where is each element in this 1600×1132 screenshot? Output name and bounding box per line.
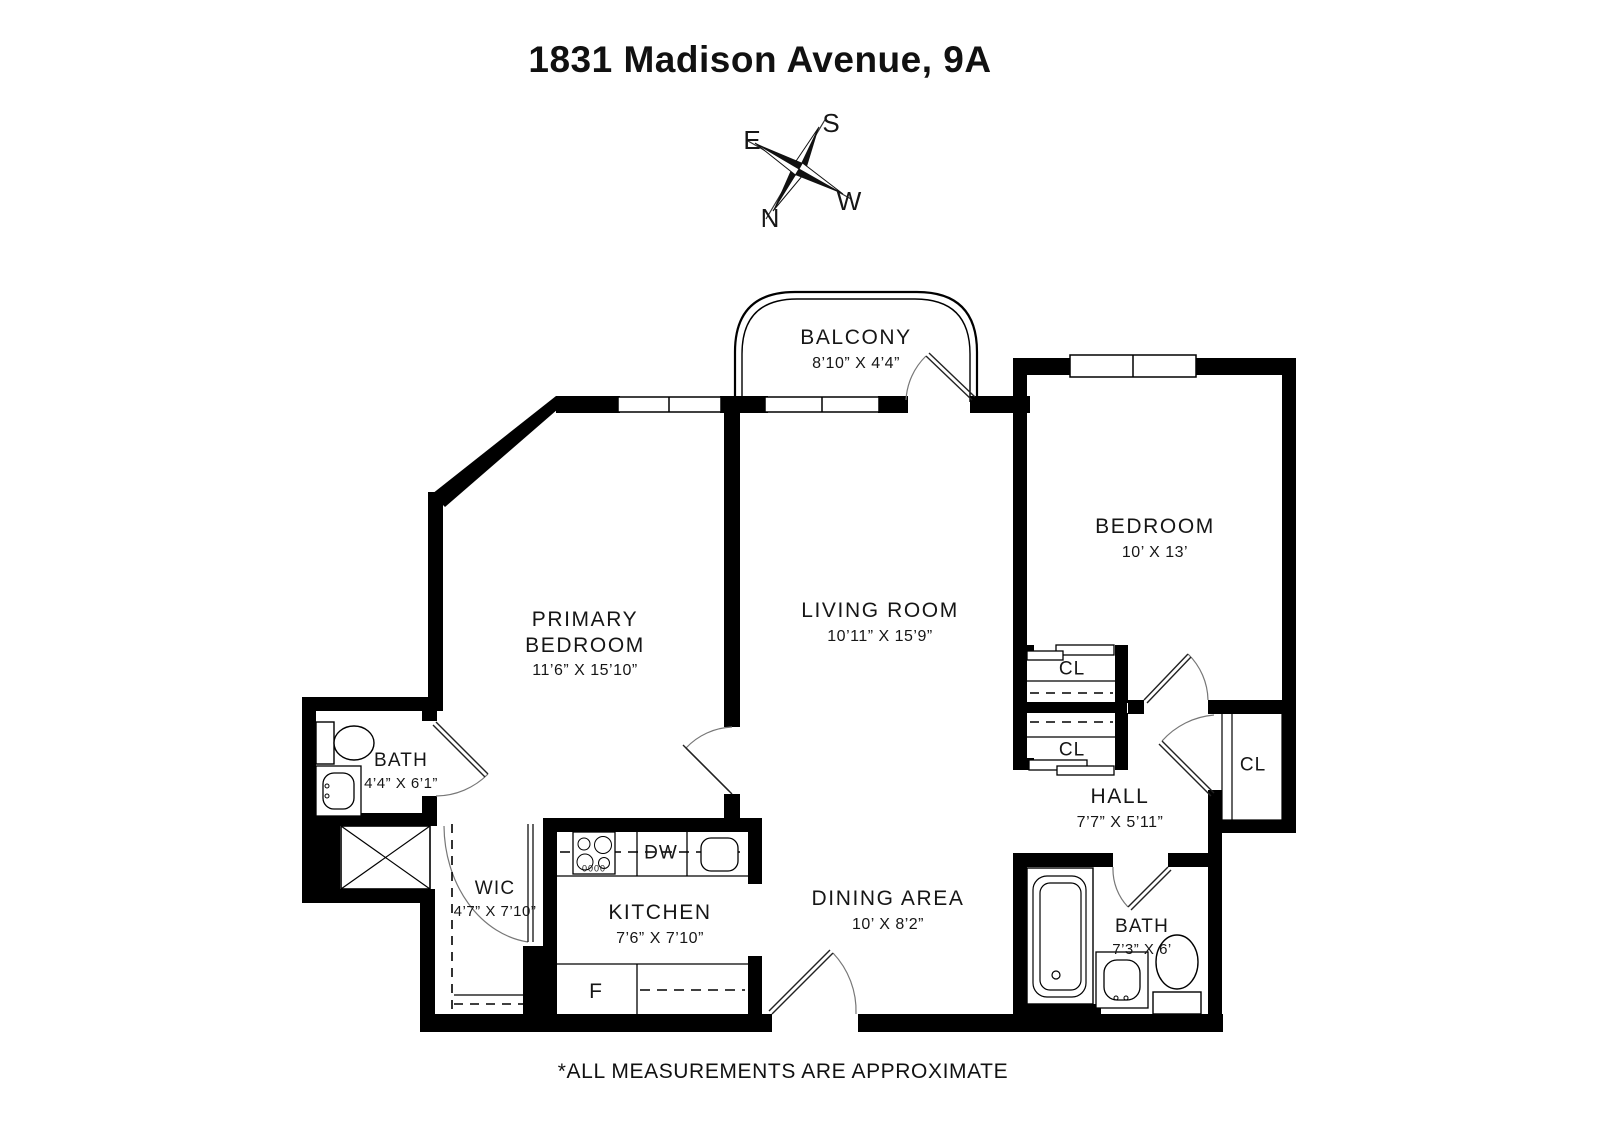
compass-rose-icon: S E W N xyxy=(743,108,861,233)
hall-name: HALL xyxy=(1077,784,1164,810)
compass-west-label: W xyxy=(837,186,862,216)
bedroom-dims: 10’ X 13’ xyxy=(1095,543,1215,563)
dining-area-dims: 10’ X 8’2” xyxy=(812,915,965,935)
footer-disclaimer: *ALL MEASUREMENTS ARE APPROXIMATE xyxy=(558,1060,1008,1084)
primary-bath-dims: 4’4” X 6’1” xyxy=(364,775,438,793)
wic-dims: 4’7” X 7’10” xyxy=(449,903,541,921)
room-label-kitchen: KITCHEN 7’6” X 7’10” xyxy=(608,900,711,948)
refrigerator-label: F xyxy=(589,979,603,1005)
compass-north-label: N xyxy=(761,203,780,233)
bath-sink-icon xyxy=(316,766,361,816)
closet-hall-label: CL xyxy=(1240,753,1266,776)
primary-bedroom-dims: 11’6” X 15’10” xyxy=(490,661,680,681)
floorplan-page: 1831 Madison Avenue, 9A S E W N xyxy=(0,0,1600,1132)
room-label-balcony: BALCONY 8’10” X 4’4” xyxy=(800,325,912,373)
balcony-door xyxy=(906,353,975,400)
closet-bottom-label: CL xyxy=(1059,738,1085,761)
hall-closet-door xyxy=(1159,715,1214,796)
hall-bath-door xyxy=(1113,867,1171,910)
room-label-hall-bath: BATH 7’3” X 6’ xyxy=(1112,915,1172,959)
dishwasher-label: DW xyxy=(644,841,678,864)
bathtub-icon xyxy=(1027,868,1093,1004)
balcony-dims: 8’10” X 4’4” xyxy=(800,354,912,374)
hall-bath-name: BATH xyxy=(1112,915,1172,938)
room-label-hall: HALL 7’7” X 5’11” xyxy=(1077,784,1164,832)
compass-south-label: S xyxy=(822,108,839,138)
entry-door xyxy=(769,950,856,1014)
room-label-wic: WIC 4’7” X 7’10” xyxy=(449,877,541,921)
bedroom-door xyxy=(1144,654,1208,703)
bedroom-name: BEDROOM xyxy=(1095,514,1215,540)
room-label-primary-bedroom: PRIMARY BEDROOM 11’6” X 15’10” xyxy=(490,607,680,681)
living-room-dims: 10’11” X 15’9” xyxy=(801,627,959,647)
hall-dims: 7’7” X 5’11” xyxy=(1077,813,1164,833)
window-primary-bedroom xyxy=(618,397,721,412)
primary-bath-door xyxy=(433,722,488,796)
kitchen-sink-icon xyxy=(701,838,738,871)
room-label-primary-bath: BATH 4’4” X 6’1” xyxy=(364,749,438,793)
room-label-living-room: LIVING ROOM 10’11” X 15’9” xyxy=(801,598,959,646)
room-label-bedroom: BEDROOM 10’ X 13’ xyxy=(1095,514,1215,562)
living-room-name: LIVING ROOM xyxy=(801,598,959,624)
closet-top-label: CL xyxy=(1059,657,1085,680)
hall-bath-dims: 7’3” X 6’ xyxy=(1112,941,1172,959)
floorplan-svg: S E W N xyxy=(0,0,1600,1132)
balcony-name: BALCONY xyxy=(800,325,912,351)
window-living-room xyxy=(765,397,879,412)
room-label-dining-area: DINING AREA 10’ X 8’2” xyxy=(812,886,965,934)
primary-bedroom-door xyxy=(683,727,732,794)
stove-knobs-label: 0000 xyxy=(582,864,606,875)
kitchen-dims: 7’6” X 7’10” xyxy=(608,929,711,949)
wic-name: WIC xyxy=(449,877,541,900)
hall-bath-sink-icon xyxy=(1096,952,1148,1008)
compass-east-label: E xyxy=(743,125,760,155)
shaft-x-icon xyxy=(341,826,430,889)
primary-bath-name: BATH xyxy=(364,749,438,772)
primary-bedroom-name: PRIMARY BEDROOM xyxy=(490,607,680,658)
kitchen-name: KITCHEN xyxy=(608,900,711,926)
window-bedroom xyxy=(1070,355,1196,377)
dining-area-name: DINING AREA xyxy=(812,886,965,912)
